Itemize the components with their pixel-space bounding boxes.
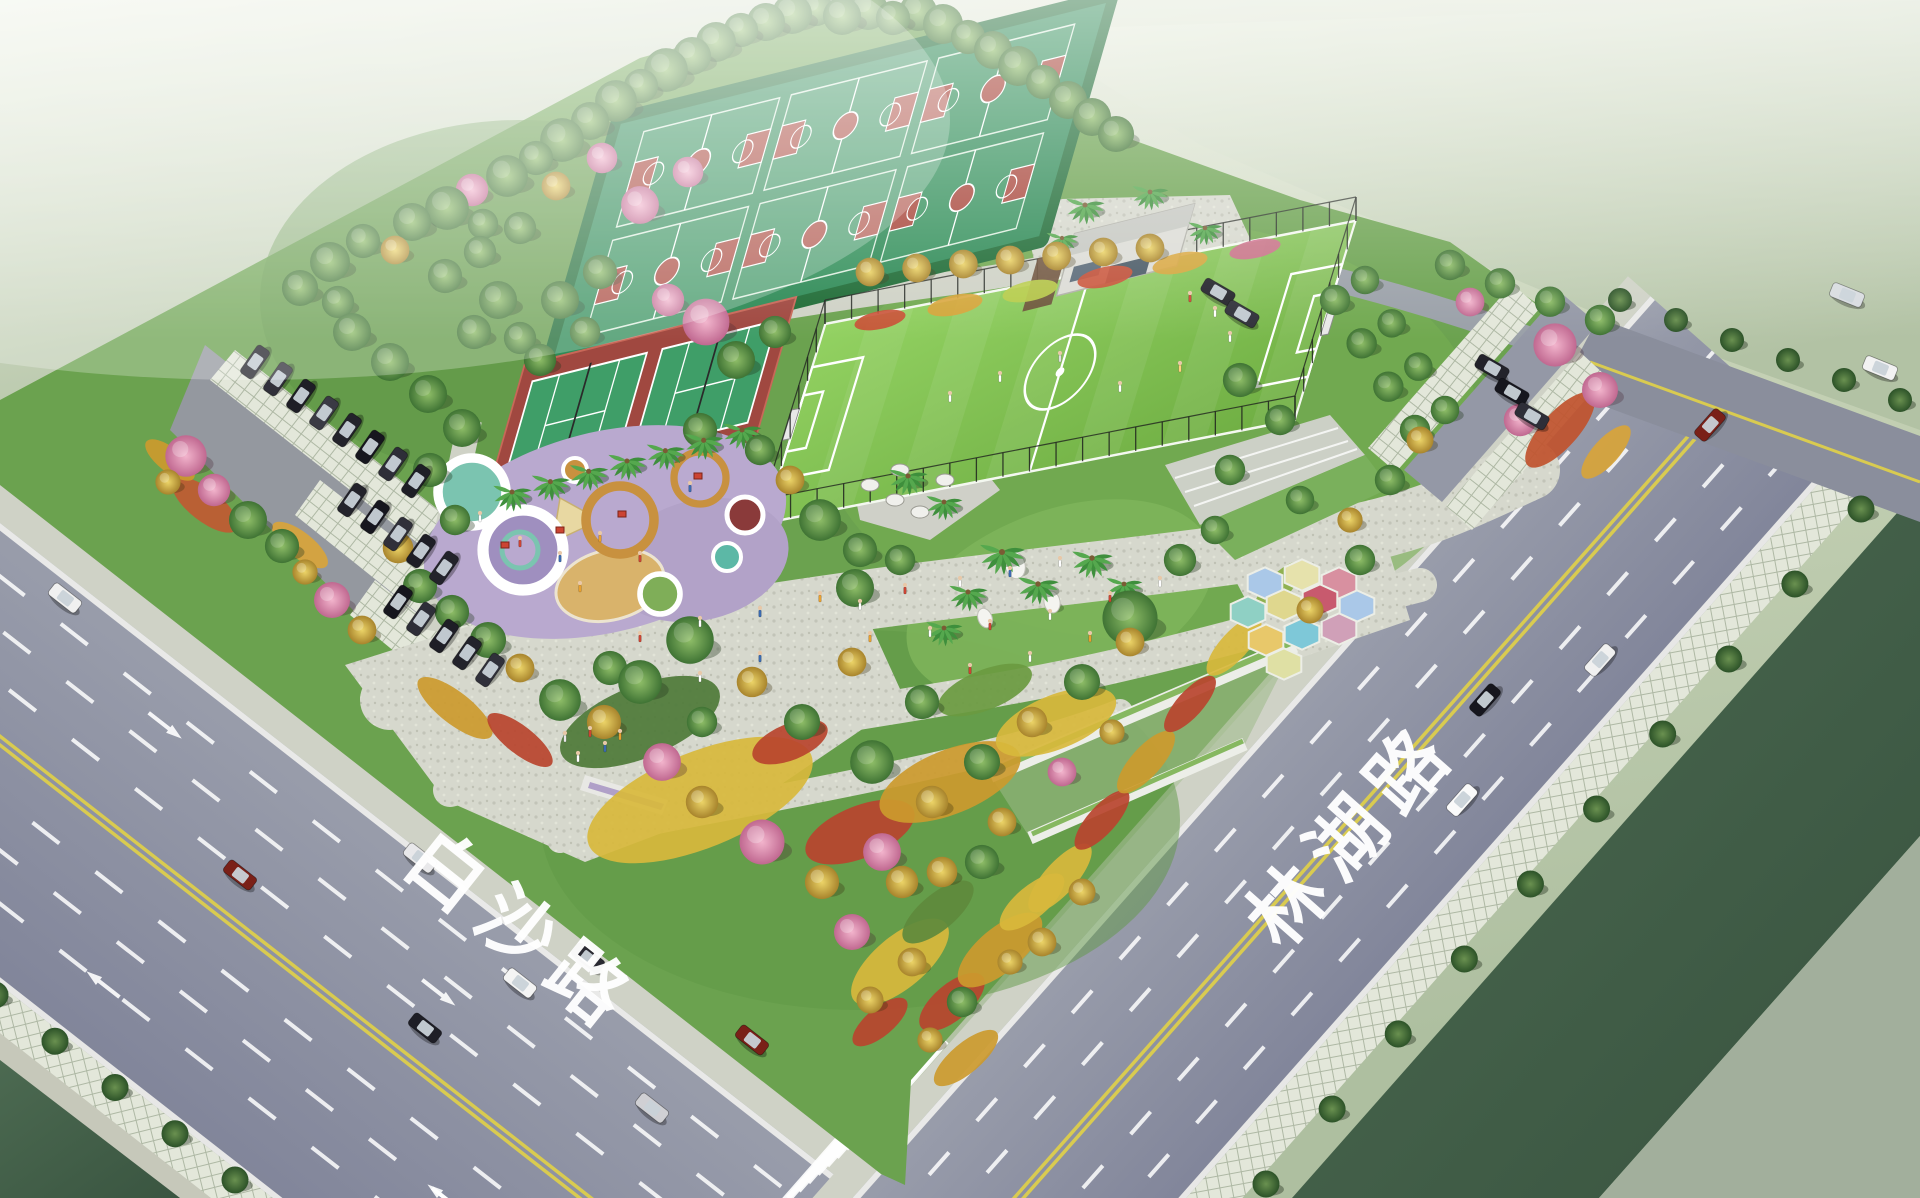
person-icon xyxy=(639,555,642,562)
person-icon xyxy=(904,587,907,594)
person-icon xyxy=(579,585,582,592)
person-head xyxy=(618,729,622,733)
person-head xyxy=(638,631,642,635)
hexagon-paver xyxy=(1285,618,1320,649)
person-icon xyxy=(1179,365,1182,372)
person-head xyxy=(1158,576,1162,580)
play-equipment-icon xyxy=(618,511,626,517)
person-head xyxy=(578,581,582,585)
person-head xyxy=(903,583,907,587)
play-circle xyxy=(727,497,763,533)
person-icon xyxy=(1089,635,1092,642)
person-icon xyxy=(1059,560,1062,567)
person-head xyxy=(1058,556,1062,560)
rock-icon xyxy=(911,506,929,518)
person-icon xyxy=(564,735,567,742)
person-icon xyxy=(989,623,992,630)
person-head xyxy=(1048,609,1052,613)
person-head xyxy=(958,576,962,580)
person-head xyxy=(688,481,692,485)
rock-icon xyxy=(936,474,954,486)
person-head xyxy=(1178,361,1182,365)
person-icon xyxy=(969,667,972,674)
person-head xyxy=(598,531,602,535)
person-head xyxy=(758,651,762,655)
person-icon xyxy=(949,395,952,402)
person-icon xyxy=(1009,570,1012,577)
aerial-scene-svg: 白沙路 林湖路 xyxy=(0,0,1920,1198)
play-circle xyxy=(713,543,741,571)
person-head xyxy=(563,731,567,735)
play-circle xyxy=(640,574,680,614)
person-icon xyxy=(689,485,692,492)
person-head xyxy=(638,551,642,555)
play-circle xyxy=(586,486,654,554)
person-icon xyxy=(1119,385,1122,392)
person-icon xyxy=(519,540,522,547)
person-icon xyxy=(819,595,822,602)
hexagon-paver xyxy=(1322,613,1357,644)
person-head xyxy=(1008,566,1012,570)
person-icon xyxy=(759,655,762,662)
person-head xyxy=(868,631,872,635)
rock-icon xyxy=(886,494,904,506)
person-icon xyxy=(599,535,602,542)
hexagon-paver xyxy=(1285,559,1320,590)
person-icon xyxy=(479,515,482,522)
person-icon xyxy=(1159,580,1162,587)
person-icon xyxy=(759,610,762,617)
hexagon-paver xyxy=(1267,648,1302,679)
person-head xyxy=(1108,591,1112,595)
play-equipment-icon xyxy=(556,527,564,533)
person-head xyxy=(758,606,762,610)
play-equipment-icon xyxy=(694,473,702,479)
person-head xyxy=(998,371,1002,375)
person-icon xyxy=(589,730,592,737)
person-head xyxy=(1028,651,1032,655)
person-head xyxy=(698,616,702,620)
person-icon xyxy=(999,375,1002,382)
person-icon xyxy=(559,555,562,562)
person-icon xyxy=(1109,595,1112,602)
person-head xyxy=(948,391,952,395)
person-head xyxy=(858,599,862,603)
person-head xyxy=(988,619,992,623)
person-head xyxy=(698,671,702,675)
person-head xyxy=(1058,351,1062,355)
person-icon xyxy=(619,733,622,740)
person-icon xyxy=(1029,655,1032,662)
person-icon xyxy=(1049,613,1052,620)
person-icon xyxy=(959,580,962,587)
person-icon xyxy=(639,635,642,642)
play-equipment-icon xyxy=(501,542,509,548)
person-icon xyxy=(869,635,872,642)
hexagon-paver xyxy=(1267,589,1302,620)
person-head xyxy=(588,726,592,730)
person-head xyxy=(1118,381,1122,385)
person-icon xyxy=(699,620,702,627)
person-icon xyxy=(859,603,862,610)
person-head xyxy=(478,511,482,515)
person-icon xyxy=(1059,355,1062,362)
person-icon xyxy=(577,755,580,762)
person-head xyxy=(1088,631,1092,635)
person-head xyxy=(928,626,932,630)
person-icon xyxy=(699,675,702,682)
rock-icon xyxy=(861,479,879,491)
person-head xyxy=(576,751,580,755)
person-icon xyxy=(929,630,932,637)
person-head xyxy=(518,536,522,540)
park-master-plan-rendering: 白沙路 林湖路 xyxy=(0,0,1920,1198)
hexagon-paver xyxy=(1231,596,1266,627)
person-head xyxy=(818,591,822,595)
person-icon xyxy=(604,745,607,752)
person-head xyxy=(968,663,972,667)
person-head xyxy=(603,741,607,745)
person-head xyxy=(558,551,562,555)
